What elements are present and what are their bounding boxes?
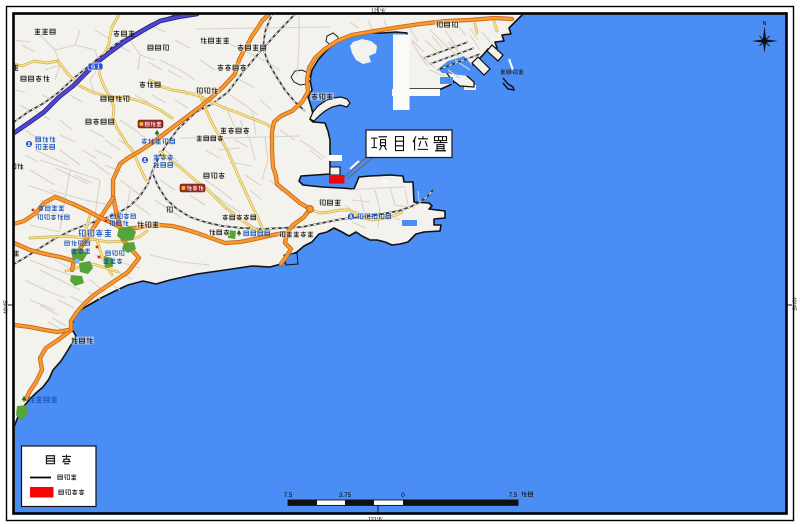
svg-text:121°6': 121°6' — [368, 517, 383, 523]
svg-text:3.75: 3.75 — [339, 492, 352, 499]
svg-text:7.5: 7.5 — [284, 492, 293, 499]
svg-text:7.5: 7.5 — [509, 492, 518, 499]
svg-text:40°45': 40°45' — [4, 300, 10, 314]
svg-text:0: 0 — [401, 492, 405, 499]
svg-text:G 1: G 1 — [91, 65, 100, 71]
svg-text:40°45': 40°45' — [790, 297, 796, 311]
